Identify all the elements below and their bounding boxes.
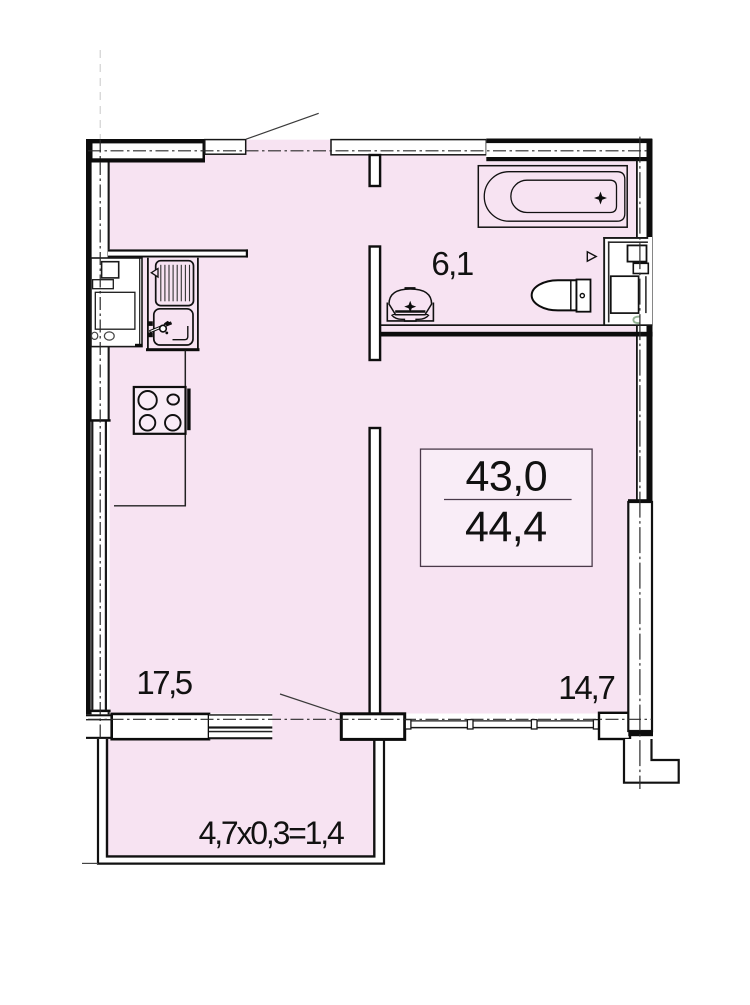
svg-text:14,7: 14,7 [558, 669, 614, 706]
svg-text:4,7x0,3=1,4: 4,7x0,3=1,4 [199, 815, 344, 851]
svg-text:43,0: 43,0 [465, 452, 547, 500]
svg-text:17,5: 17,5 [136, 664, 191, 701]
svg-text:6,1: 6,1 [431, 245, 473, 282]
svg-text:44,4: 44,4 [465, 503, 547, 551]
